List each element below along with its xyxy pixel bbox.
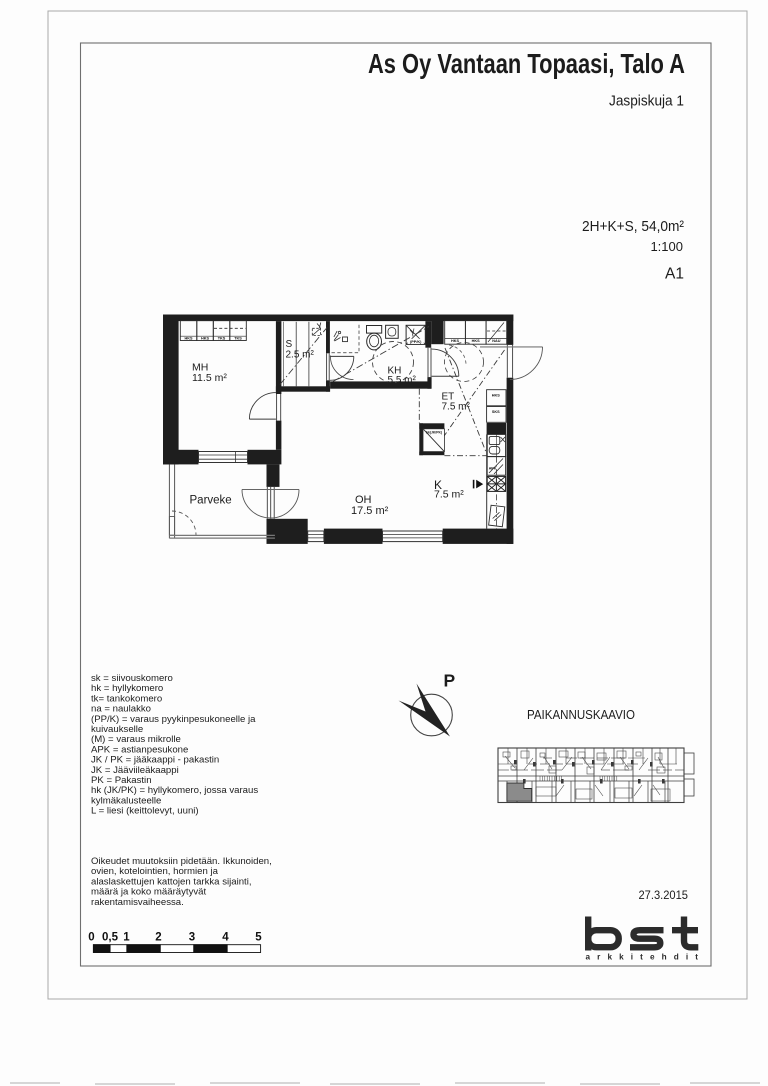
svg-text:SKS: SKS (492, 410, 500, 414)
svg-text:17.5 m²: 17.5 m² (351, 505, 389, 517)
svg-text:Parveke: Parveke (190, 495, 232, 507)
svg-text:1:100: 1:100 (650, 239, 683, 254)
svg-text:S: S (286, 339, 293, 350)
svg-text:TKS: TKS (234, 337, 242, 341)
svg-text:4: 4 (222, 932, 229, 944)
svg-text:HKS: HKS (472, 339, 480, 343)
svg-text:11.5 m²: 11.5 m² (192, 372, 227, 384)
svg-text:2H+K+S, 54,0m²: 2H+K+S, 54,0m² (582, 218, 684, 235)
svg-text:HKS: HKS (184, 337, 192, 341)
svg-text:5: 5 (255, 932, 262, 944)
svg-text:2.5 m²: 2.5 m² (286, 350, 315, 361)
svg-text:1: 1 (123, 932, 130, 944)
svg-text:27.3.2015: 27.3.2015 (639, 888, 689, 902)
svg-text:5.5 m²: 5.5 m² (388, 375, 417, 386)
svg-text:3: 3 (189, 932, 195, 944)
svg-text:rakentamisvaiheessa.: rakentamisvaiheessa. (91, 897, 184, 908)
svg-text:APK: APK (489, 467, 497, 471)
svg-text:7.5 m²: 7.5 m² (434, 489, 464, 501)
svg-text:7.5 m²: 7.5 m² (442, 402, 471, 413)
svg-text:(PP/K): (PP/K) (410, 340, 422, 344)
svg-text:Jaspiskuja 1: Jaspiskuja 1 (609, 93, 684, 110)
svg-text:P: P (444, 671, 456, 691)
svg-text:As Oy Vantaan Topaasi, Talo A: As Oy Vantaan Topaasi, Talo A (368, 48, 685, 79)
svg-text:NAU: NAU (492, 339, 500, 343)
svg-text:HKS: HKS (201, 337, 209, 341)
svg-text:2: 2 (155, 932, 161, 944)
svg-text:TKS: TKS (218, 337, 226, 341)
svg-text:HKS: HKS (451, 339, 459, 343)
svg-text:0,5: 0,5 (102, 932, 119, 944)
svg-text:PAIKANNUSKAAVIO: PAIKANNUSKAAVIO (527, 708, 635, 722)
svg-text:0: 0 (88, 932, 94, 944)
svg-text:A1: A1 (665, 266, 684, 283)
svg-text:HKS: HKS (492, 394, 500, 398)
svg-text:L = liesi (keittolevyt, uuni): L = liesi (keittolevyt, uuni) (91, 806, 199, 817)
svg-text:hk(JK/PK): hk(JK/PK) (426, 430, 442, 434)
